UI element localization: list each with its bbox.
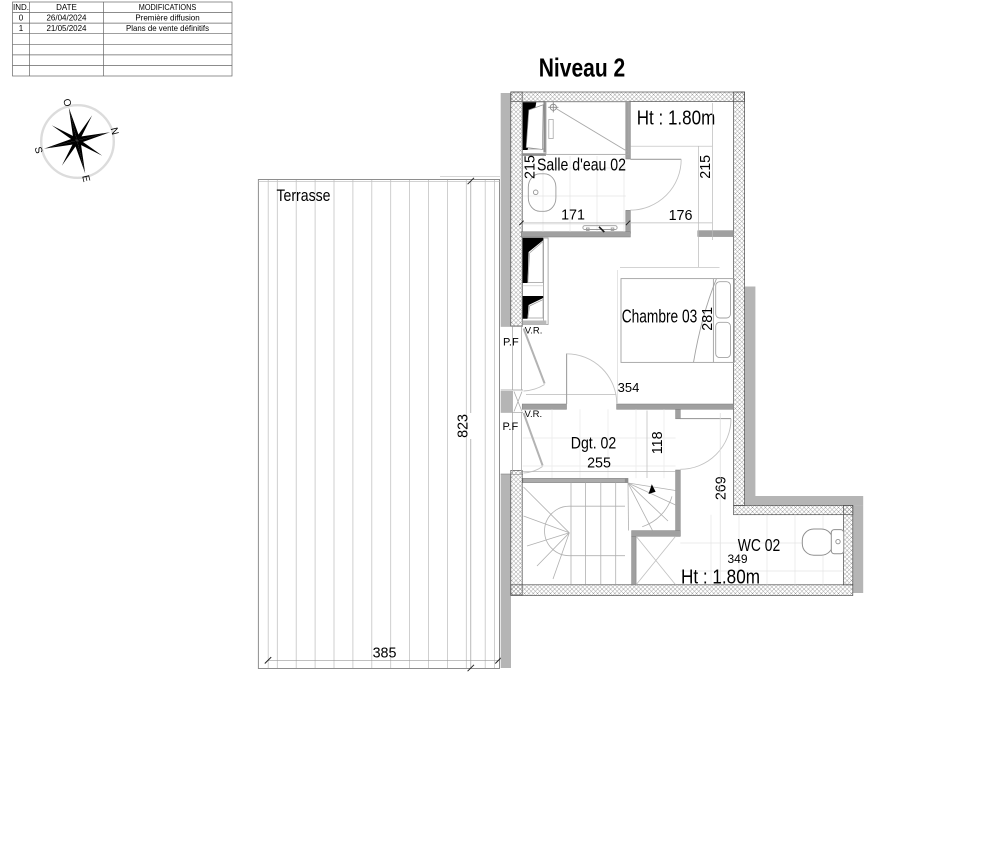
svg-text:118: 118 [650,431,666,454]
svg-text:Ht : 1.80m: Ht : 1.80m [681,565,760,588]
svg-text:Plans de vente définitifs: Plans de vente définitifs [126,24,209,33]
svg-text:DATE: DATE [56,3,77,12]
svg-text:IND.: IND. [13,3,29,12]
svg-text:171: 171 [561,208,585,224]
svg-text:349: 349 [727,552,747,566]
svg-text:Chambre 03: Chambre 03 [622,307,698,327]
svg-text:V.R.: V.R. [525,326,543,337]
svg-text:26/04/2024: 26/04/2024 [46,14,87,23]
svg-text:385: 385 [373,646,397,662]
svg-text:P.F: P.F [503,421,519,433]
svg-text:1: 1 [19,24,24,33]
svg-text:Première diffusion: Première diffusion [135,14,199,23]
svg-text:281: 281 [700,307,716,331]
svg-text:215: 215 [523,155,539,179]
svg-text:176: 176 [669,208,693,224]
svg-text:Ht : 1.80m: Ht : 1.80m [637,107,716,130]
svg-text:255: 255 [587,455,611,471]
svg-text:MODIFICATIONS: MODIFICATIONS [139,3,197,12]
svg-text:Dgt. 02: Dgt. 02 [571,434,617,452]
svg-text:Niveau 2: Niveau 2 [539,53,626,83]
svg-text:215: 215 [698,155,714,179]
svg-text:0: 0 [19,14,24,23]
svg-text:Terrasse: Terrasse [277,187,331,205]
svg-text:823: 823 [456,414,472,438]
svg-text:P.F: P.F [503,337,519,349]
svg-text:V.R.: V.R. [525,409,543,420]
svg-text:21/05/2024: 21/05/2024 [46,24,87,33]
svg-text:354: 354 [618,380,640,395]
svg-text:Salle d'eau 02: Salle d'eau 02 [537,155,626,175]
svg-text:269: 269 [714,476,730,500]
